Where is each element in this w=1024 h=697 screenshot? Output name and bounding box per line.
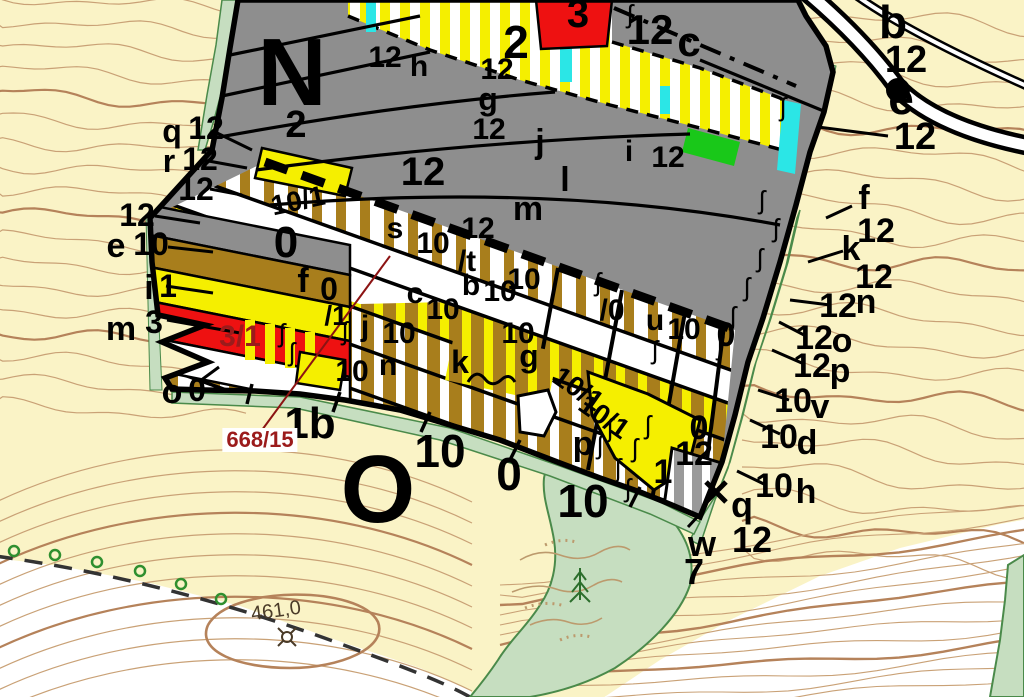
spring-symbol-icon: ʃ bbox=[627, 1, 633, 27]
map-label-3: 3 bbox=[145, 306, 163, 338]
map-label-10: 10 bbox=[760, 420, 798, 454]
map-label-g: g bbox=[478, 83, 498, 115]
spring-symbol-icon: ʃ bbox=[645, 412, 651, 438]
spring-symbol-icon: ʃ bbox=[773, 215, 779, 241]
map-label-l: l bbox=[560, 163, 569, 197]
map-label-12: 12 bbox=[627, 9, 674, 51]
spring-symbol-icon: ʃ bbox=[717, 333, 723, 359]
elevation-label: 461,0 bbox=[250, 598, 302, 625]
map-label-k: k bbox=[451, 346, 469, 378]
map-label-10: 10 bbox=[414, 428, 465, 474]
map-label-12: 12 bbox=[188, 112, 224, 144]
map-label-e: e bbox=[888, 75, 914, 121]
spring-symbol-icon: ʃ bbox=[289, 339, 295, 365]
spring-symbol-icon: ʃ bbox=[652, 337, 658, 363]
spring-symbol-icon: ʃ bbox=[744, 274, 750, 300]
map-label-b: b bbox=[462, 271, 480, 301]
map-label-10: 10 bbox=[755, 469, 793, 503]
map-label-f: f bbox=[297, 264, 308, 298]
map-label-12: 12 bbox=[855, 260, 893, 294]
map-label-12: 12 bbox=[401, 152, 446, 192]
spring-symbol-icon: ʃ bbox=[595, 269, 601, 295]
compartment-letter-O: O bbox=[341, 442, 416, 538]
spring-symbol-icon: ʃ bbox=[342, 318, 348, 344]
map-label-10: 10 bbox=[133, 228, 169, 260]
map-label-s: s bbox=[387, 214, 404, 244]
map-label-10: 10 bbox=[426, 295, 459, 325]
map-label-i: i bbox=[144, 271, 153, 305]
map-label-12: 12 bbox=[675, 437, 713, 471]
map-label-p: p bbox=[573, 427, 594, 461]
map-label-3: 3 bbox=[567, 0, 589, 34]
map-label-c: c bbox=[407, 279, 424, 309]
map-label-j: j bbox=[535, 125, 544, 159]
map-label-12: 12 bbox=[795, 321, 833, 355]
spring-symbol-icon: ʃ bbox=[615, 455, 621, 481]
map-label-m: m bbox=[106, 312, 136, 346]
map-label-10: 10 bbox=[335, 357, 368, 387]
spring-symbol-icon: ʃ bbox=[759, 187, 765, 213]
parcel-label-3-1: 3/1 bbox=[219, 322, 261, 352]
map-label-0: 0 bbox=[188, 374, 206, 406]
spring-symbol-icon: ʃ bbox=[625, 475, 631, 501]
spring-symbol-icon: ʃ bbox=[279, 320, 285, 346]
map-label-10: 10 bbox=[416, 229, 449, 259]
map-label-10: 10 bbox=[382, 319, 415, 349]
map-label-12: 12 bbox=[894, 118, 936, 156]
map-label-r: r bbox=[163, 145, 175, 177]
map-label-n: n bbox=[379, 351, 397, 381]
map-label-u: u bbox=[646, 306, 664, 336]
map-label-10: 10 bbox=[483, 277, 516, 307]
map-label-0: 0 bbox=[496, 451, 522, 497]
parcel-number-668-15: 668/15 bbox=[222, 428, 297, 452]
spring-symbol-icon: ʃ bbox=[757, 245, 763, 271]
spring-symbol-icon: ʃ bbox=[632, 435, 638, 461]
map-label-m: m bbox=[513, 192, 543, 226]
map-label-0: 0 bbox=[274, 221, 298, 265]
map-label-12: 12 bbox=[857, 214, 895, 248]
map-label-h: h bbox=[796, 475, 817, 509]
map-label-f: f bbox=[858, 181, 869, 215]
map-label-c: c bbox=[677, 21, 700, 63]
map-label-12: 12 bbox=[368, 43, 401, 73]
map-label-2: 2 bbox=[285, 106, 306, 144]
map-label-12: 12 bbox=[178, 173, 214, 205]
map-label-12: 12 bbox=[819, 289, 857, 323]
map-labels: NO2312cb12e1212h12g12j12i12lm2q12r121212… bbox=[0, 0, 1024, 697]
map-label-e: e bbox=[107, 229, 126, 263]
map-label-12: 12 bbox=[732, 522, 772, 558]
map-label-12: 12 bbox=[651, 143, 684, 173]
spring-symbol-icon: ʃ bbox=[730, 303, 736, 329]
map-label-h: h bbox=[410, 52, 428, 82]
map-label-o: o bbox=[832, 324, 853, 358]
map-label-12: 12 bbox=[461, 214, 494, 244]
spring-symbol-icon: ʃ bbox=[607, 415, 613, 441]
map-label-q: q bbox=[731, 487, 753, 523]
spring-symbol-icon: ʃ bbox=[780, 94, 786, 120]
map-label-10: 10 bbox=[557, 478, 608, 524]
map-label-i: i bbox=[625, 137, 633, 167]
map-label-10: 10 bbox=[501, 319, 534, 349]
spring-symbol-icon: ʃ bbox=[597, 432, 603, 458]
map-label-v: v bbox=[811, 390, 830, 424]
map-label-10_1: 10/1 bbox=[268, 182, 327, 221]
map-viewport: NO2312cb12e1212h12g12j12i12lm2q12r121212… bbox=[0, 0, 1024, 697]
map-label-_0: /0 bbox=[599, 296, 624, 326]
map-label-12: 12 bbox=[472, 115, 505, 145]
map-label-1: 1 bbox=[159, 270, 177, 302]
map-label-10: 10 bbox=[774, 384, 812, 418]
map-label-o: o bbox=[162, 375, 183, 409]
map-label-d: d bbox=[797, 426, 818, 460]
map-label-10: 10 bbox=[667, 315, 700, 345]
map-label-7: 7 bbox=[684, 554, 704, 590]
map-label-j: j bbox=[361, 312, 369, 342]
map-label-1: 1 bbox=[654, 455, 673, 489]
